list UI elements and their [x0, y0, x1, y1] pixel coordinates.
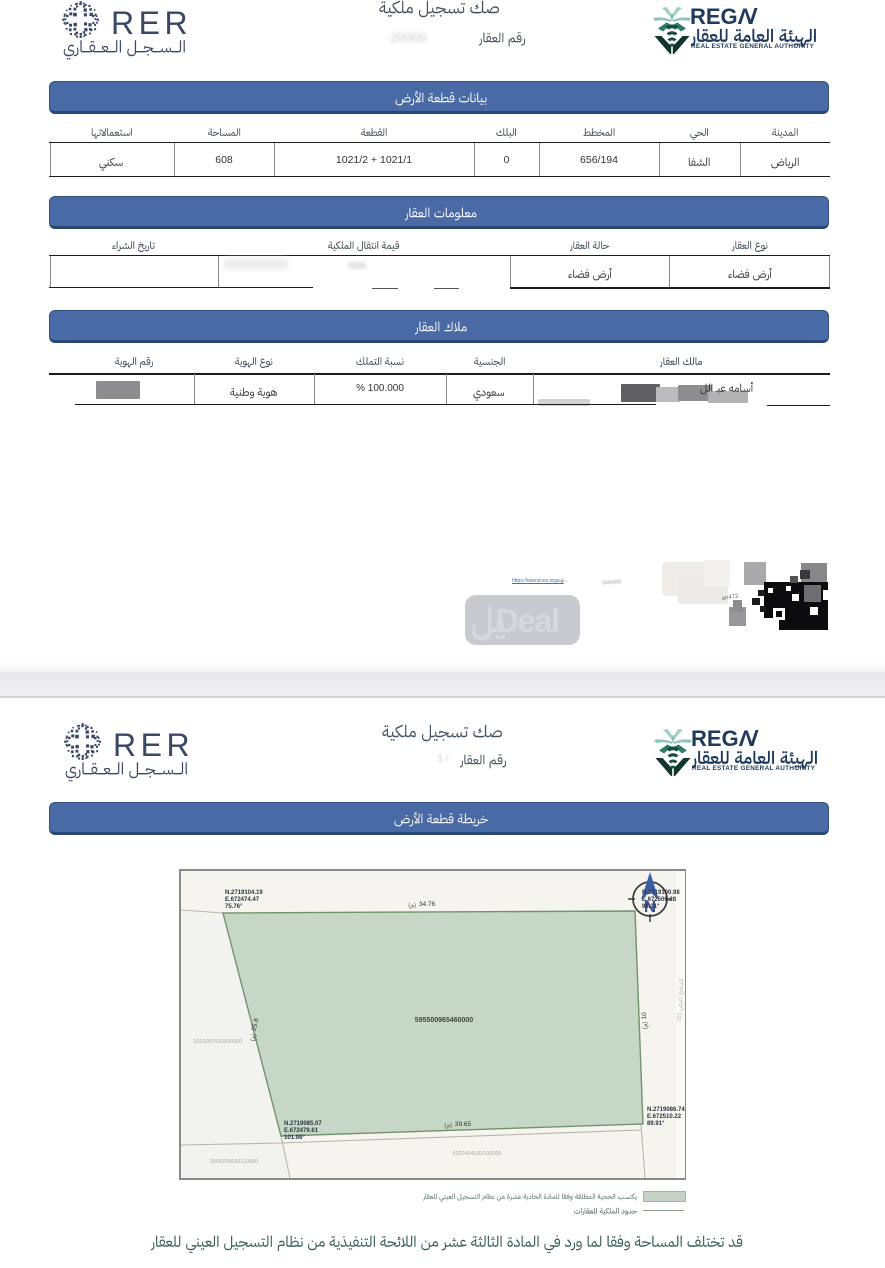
svg-text:34.76: 34.76 [419, 901, 436, 908]
svg-text:39.65: 39.65 [455, 1121, 472, 1128]
svg-text:6322404183100000: 6322404183100000 [453, 1151, 502, 1157]
svg-text:9446: 9446 [732, 608, 743, 614]
svg-text:595500965460000: 595500965460000 [415, 1017, 474, 1024]
svg-text:10: 10 [641, 1012, 648, 1020]
svg-text:Deal: Deal [495, 602, 559, 639]
svg-text:3201097910600000: 3201097910600000 [194, 1039, 243, 1045]
svg-text:3958766042110000: 3958766042110000 [210, 1159, 259, 1165]
